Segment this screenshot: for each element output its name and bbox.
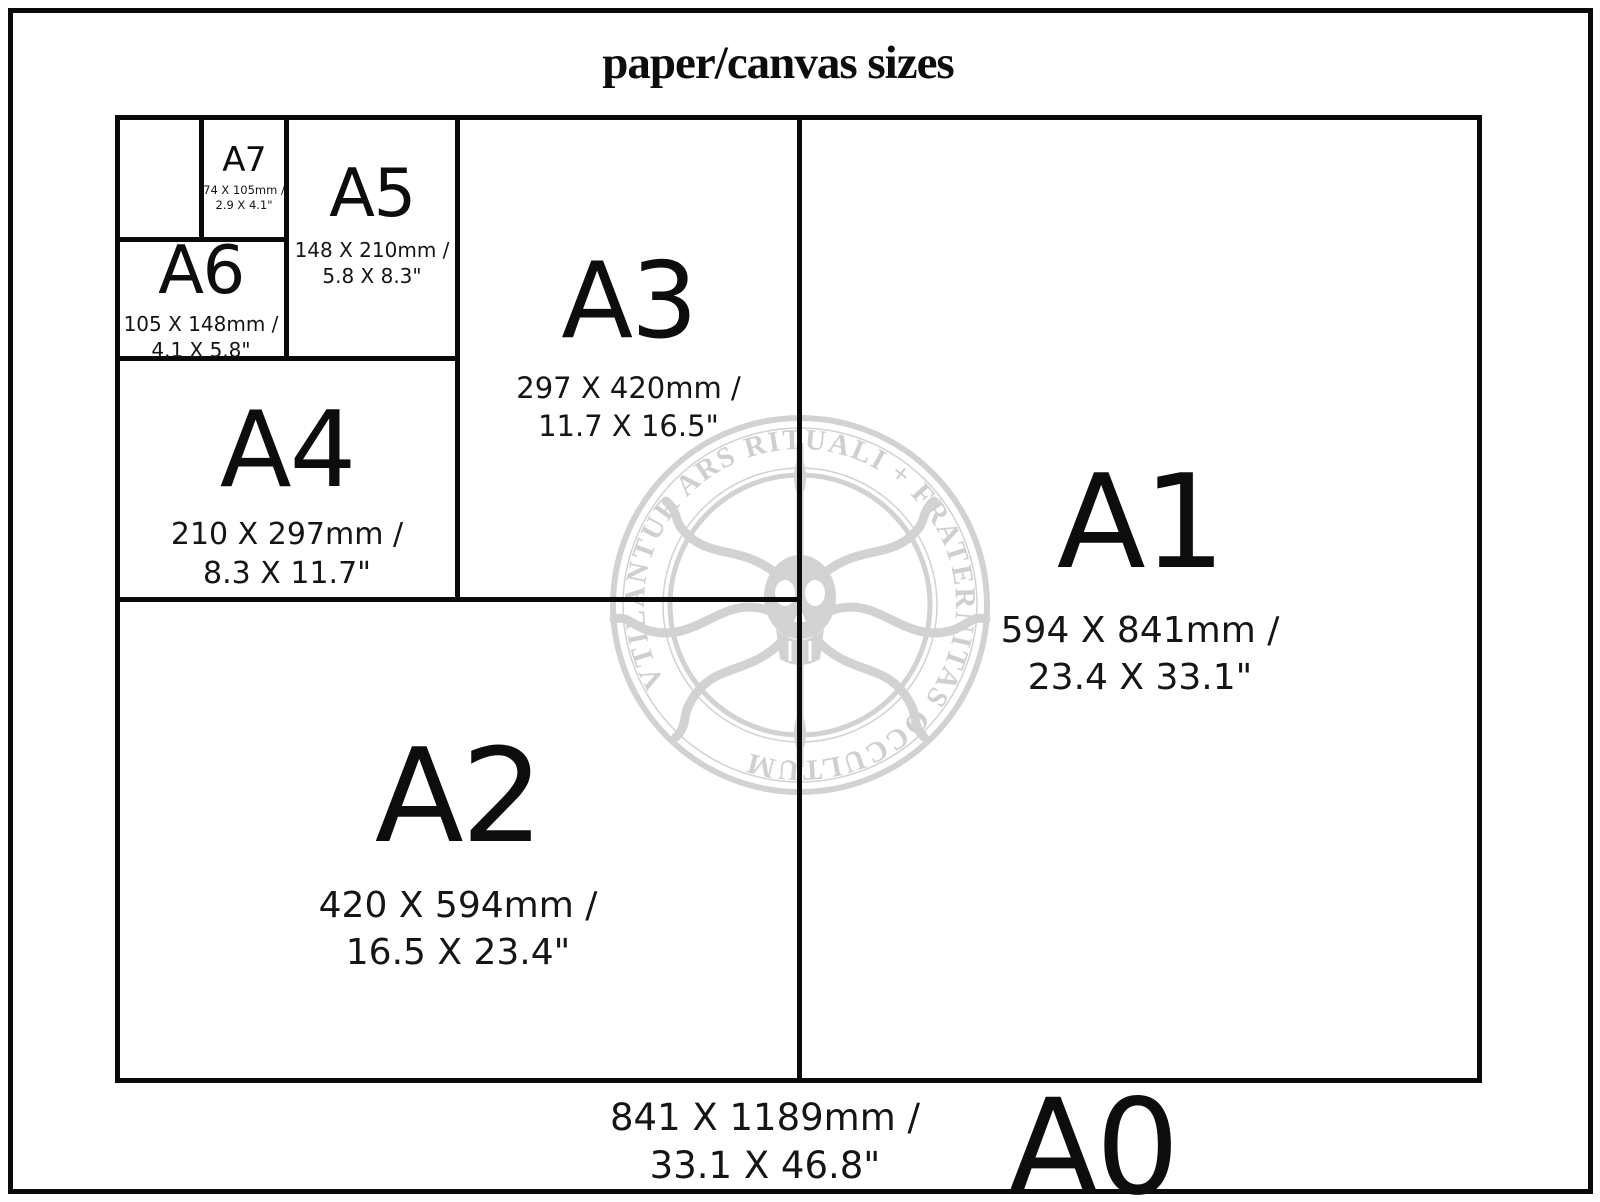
size-inches-a2: 16.5 X 23.4" — [319, 930, 598, 977]
size-box-a3: A3 297 X 420mm / 11.7 X 16.5" — [458, 117, 799, 599]
size-inches-a0: 33.1 X 46.8" — [460, 1142, 1070, 1190]
size-inches-a4: 8.3 X 11.7" — [171, 554, 403, 593]
size-box-a7: A7 74 X 105mm / 2.9 X 4.1" — [201, 117, 287, 239]
size-mm-a4: 210 X 297mm / — [171, 515, 403, 554]
size-dims-a2: 420 X 594mm / 16.5 X 23.4" — [319, 883, 598, 977]
size-dims-a7: 74 X 105mm / 2.9 X 4.1" — [203, 183, 285, 213]
size-mm-a6: 105 X 148mm / — [124, 311, 279, 337]
size-label-a1: A1 — [1057, 454, 1223, 591]
size-mm-a1: 594 X 841mm / — [1001, 608, 1280, 655]
size-dims-a6: 105 X 148mm / 4.1 X 5.8" — [124, 311, 279, 363]
size-mm-a7: 74 X 105mm / — [203, 183, 285, 198]
size-mm-a5: 148 X 210mm / — [295, 237, 450, 263]
size-mm-a0: 841 X 1189mm / — [460, 1094, 1070, 1142]
size-label-a4: A4 — [220, 395, 354, 505]
size-dims-a5: 148 X 210mm / 5.8 X 8.3" — [295, 237, 450, 289]
size-dims-a4: 210 X 297mm / 8.3 X 11.7" — [171, 515, 403, 593]
size-inches-a7: 2.9 X 4.1" — [203, 198, 285, 213]
size-inches-a5: 5.8 X 8.3" — [295, 263, 450, 289]
size-mm-a3: 297 X 420mm / — [516, 370, 741, 408]
page-title: paper/canvas sizes — [0, 36, 1578, 90]
size-label-a2: A2 — [375, 728, 541, 865]
size-box-a4: A4 210 X 297mm / 8.3 X 11.7" — [117, 359, 457, 599]
size-inches-a3: 11.7 X 16.5" — [516, 408, 741, 446]
size-dims-a1: 594 X 841mm / 23.4 X 33.1" — [1001, 608, 1280, 702]
size-inches-a1: 23.4 X 33.1" — [1001, 655, 1280, 702]
size-label-a6: A6 — [158, 235, 244, 305]
size-dims-a3: 297 X 420mm / 11.7 X 16.5" — [516, 370, 741, 445]
size-label-a5: A5 — [329, 158, 415, 228]
size-box-a1: A1 594 X 841mm / 23.4 X 33.1" — [800, 117, 1480, 1079]
page: paper/canvas sizes VTILANTUR ARS RITUALI… — [0, 0, 1600, 1202]
size-dims-a0: 841 X 1189mm / 33.1 X 46.8" — [460, 1094, 1070, 1190]
size-mm-a2: 420 X 594mm / — [319, 883, 598, 930]
size-label-a0: A0 — [1008, 1082, 1177, 1202]
size-box-a6: A6 105 X 148mm / 4.1 X 5.8" — [117, 240, 285, 358]
size-box-a5: A5 148 X 210mm / 5.8 X 8.3" — [287, 117, 457, 358]
size-label-a7: A7 — [222, 143, 266, 179]
size-box-a2: A2 420 X 594mm / 16.5 X 23.4" — [117, 600, 799, 1081]
size-label-a3: A3 — [561, 246, 695, 356]
